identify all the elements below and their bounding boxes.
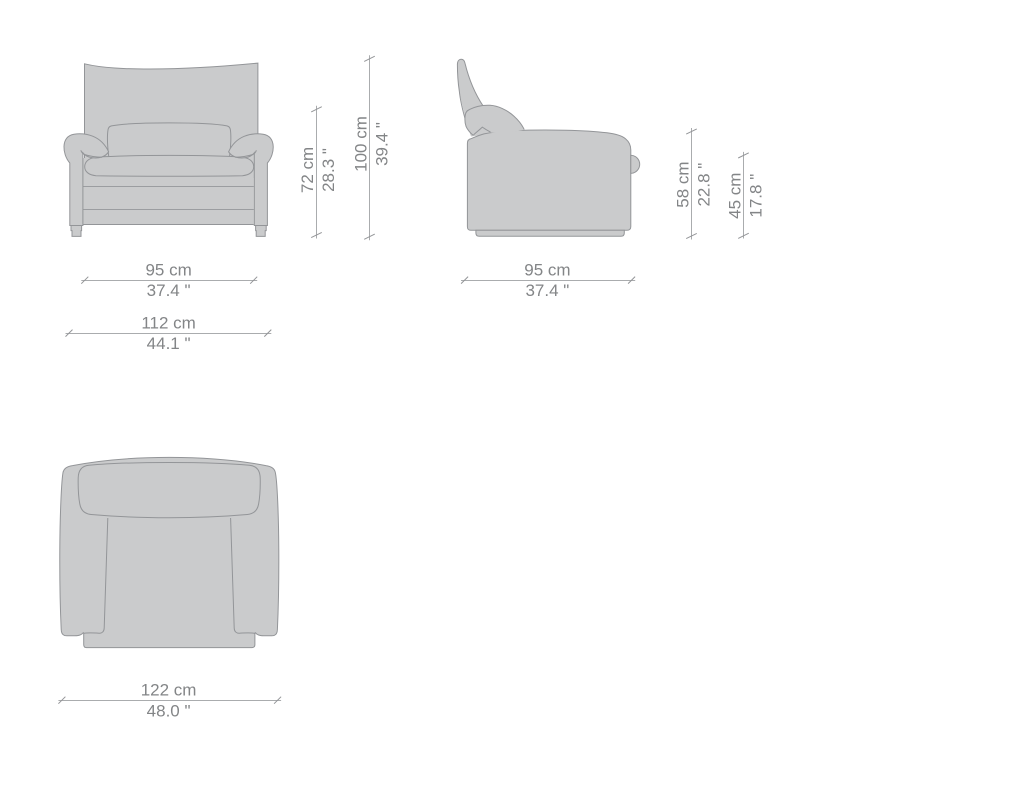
svg-text:37.4 ": 37.4 " bbox=[525, 281, 569, 300]
svg-text:95 cm: 95 cm bbox=[145, 261, 191, 280]
svg-text:44.1 ": 44.1 " bbox=[147, 334, 191, 353]
svg-text:22.8 ": 22.8 " bbox=[694, 163, 713, 207]
svg-text:112 cm: 112 cm bbox=[141, 314, 196, 333]
svg-text:39.4 ": 39.4 " bbox=[373, 122, 392, 166]
svg-text:100 cm: 100 cm bbox=[352, 116, 371, 172]
svg-text:58 cm: 58 cm bbox=[673, 161, 692, 207]
svg-text:37.4 ": 37.4 " bbox=[147, 281, 191, 300]
svg-text:45 cm: 45 cm bbox=[726, 173, 745, 219]
svg-text:17.8 ": 17.8 " bbox=[747, 174, 766, 218]
svg-text:48.0 ": 48.0 " bbox=[147, 702, 191, 721]
svg-text:72 cm: 72 cm bbox=[298, 147, 317, 193]
svg-text:122 cm: 122 cm bbox=[141, 681, 197, 700]
svg-text:95 cm: 95 cm bbox=[524, 261, 570, 280]
svg-text:28.3 ": 28.3 " bbox=[319, 148, 338, 192]
